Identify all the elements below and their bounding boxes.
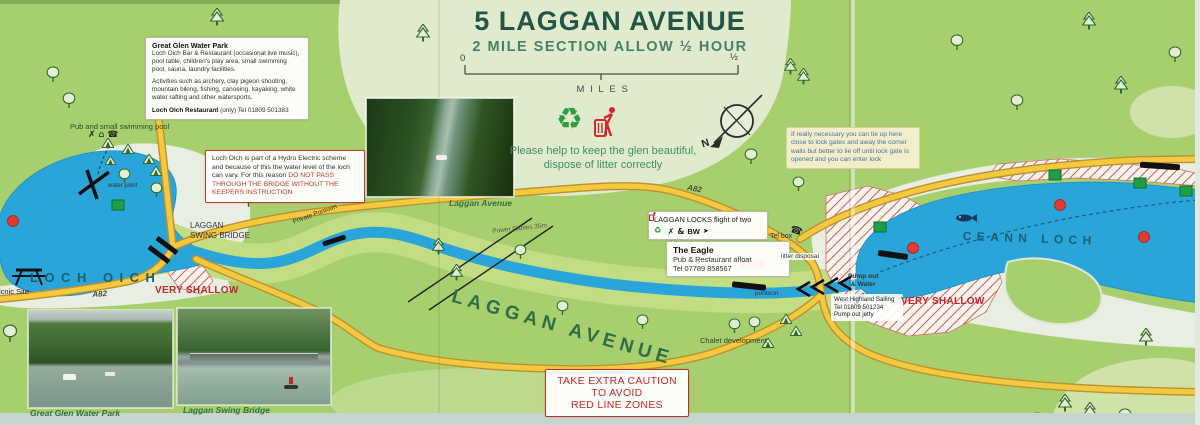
water-park-info-box: Great Glen Water Park Loch Oich Bar & Re… <box>145 37 309 120</box>
leaflet-right-edge <box>1195 0 1200 425</box>
sailing-line2: Tel 01809 501234 <box>834 304 900 312</box>
hydro-warning-box: Loch Oich is part of a Hydro Electric sc… <box>205 150 365 203</box>
water-park-footer-bold: Loch Oich Restaurant <box>152 107 218 114</box>
mooring-note-box: If really necessary you can tie up here … <box>786 127 920 169</box>
water-park-body2: Activities such as archery, clay pigeon … <box>152 78 302 102</box>
page-subtitle: 2 MILE SECTION ALLOW ½ HOUR <box>440 39 780 55</box>
very-shallow-label-east: VERY SHALLOW <box>901 296 985 307</box>
boat-in-photo <box>436 155 447 160</box>
litter-disposal-label: litter disposal <box>779 253 821 260</box>
caution-box: TAKE EXTRA CAUTION TO AVOID RED LINE ZON… <box>545 369 689 417</box>
direction-arrow-icon: ➤ <box>703 227 709 235</box>
boat-in-photo <box>105 372 115 376</box>
swing-bridge-line2: SWING BRIDGE <box>190 231 250 240</box>
waterpark-amenity-icons: ✗⌂☎ <box>88 130 121 140</box>
facilities-icon: & <box>677 227 684 236</box>
building-icon: ⌂ <box>99 130 108 140</box>
fold-line-left <box>438 0 440 425</box>
photo-laggan-swing-bridge <box>177 308 331 405</box>
recycle-icon: ♻ <box>654 226 662 236</box>
eagle-line1: Pub & Restaurant afloat <box>673 255 783 264</box>
photo-laggan-avenue <box>366 98 514 197</box>
chalet-development-label: Chalet development <box>700 336 767 345</box>
caution-line3: RED LINE ZONES <box>550 399 684 411</box>
fold-line-right <box>849 0 851 425</box>
canoeist-in-photo <box>289 377 293 384</box>
eagle-name: The Eagle <box>673 245 783 255</box>
pump-out-label: Pump out & Water <box>848 273 878 288</box>
pump-out-line1: Pump out <box>848 273 878 280</box>
caution-line1: TAKE EXTRA CAUTION <box>550 375 684 387</box>
caution-line2: TO AVOID <box>550 387 684 399</box>
eagle-line2: Tel 07789 858567 <box>673 264 783 273</box>
laggan-locks-title: LAGGAN LOCKS flight of two <box>654 215 762 224</box>
water-park-body1: Loch Oich Bar & Restaurant (occasional l… <box>152 50 302 74</box>
boat-in-photo <box>63 374 76 380</box>
laggan-swing-bridge-label: LAGGAN SWING BRIDGE <box>190 221 250 240</box>
photo-caption-water-park: Great Glen Water Park <box>30 408 120 418</box>
page-title: 5 LAGGAN AVENUE <box>440 6 780 37</box>
loch-oich-label: LOCH OICH <box>30 270 161 285</box>
sailing-box: West Highland Sailing Tel 01809 501234 P… <box>831 294 903 321</box>
scale-unit-label: MILES <box>535 84 675 95</box>
very-shallow-label-west: VERY SHALLOW <box>155 285 239 296</box>
laggan-locks-box: LAGGAN LOCKS flight of two ♻ ✗ & BW ➤ <box>648 211 768 240</box>
water-park-heading: Great Glen Water Park <box>152 42 302 50</box>
bridge-in-photo <box>190 353 318 364</box>
swing-bridge-line1: LAGGAN <box>190 221 223 230</box>
photo-caption-swing-bridge: Laggan Swing Bridge <box>183 405 270 415</box>
litter-notice-line2: dispose of litter correctly <box>544 159 663 171</box>
sailing-line1: West Highland Sailing <box>834 296 900 304</box>
photo-caption-laggan-avenue: Laggan Avenue <box>425 198 512 208</box>
scale-end-label: ½ <box>730 52 738 63</box>
eagle-pub-box: The Eagle Pub & Restaurant afloat Tel 07… <box>666 241 790 277</box>
food-icon: ✗ <box>88 130 99 140</box>
recycle-icon: ♻ <box>556 102 583 137</box>
pontoon-label: pontoon <box>755 290 779 297</box>
fold-highlight <box>851 0 855 425</box>
litter-notice-line1: Please help to keep the glen beautiful, <box>510 145 697 157</box>
sailing-line3: Pump out jetty <box>834 311 900 319</box>
map-leaflet: Laggan Avenue Great Glen Water Park Lagg… <box>0 0 1200 425</box>
a82-label-west: A82 <box>92 289 107 299</box>
photo-great-glen-water-park <box>28 310 173 408</box>
water-park-footer: (only) Tel 01809 501383 <box>218 107 288 114</box>
scale-start-label: 0 <box>460 53 465 64</box>
pump-out-line2: & Water <box>851 281 876 288</box>
mooring-note-text: If really necessary you can tie up here … <box>791 131 909 163</box>
food-icon: ✗ <box>668 227 675 236</box>
picnic-site-label: Picnic Site <box>0 287 29 296</box>
litter-notice: Please help to keep the glen beautiful, … <box>505 144 701 172</box>
bw-sign: BW <box>687 227 700 236</box>
canoeist-in-photo <box>284 385 298 389</box>
water-point-label: water point <box>108 183 137 189</box>
phone-icon: ☎ <box>107 130 121 140</box>
